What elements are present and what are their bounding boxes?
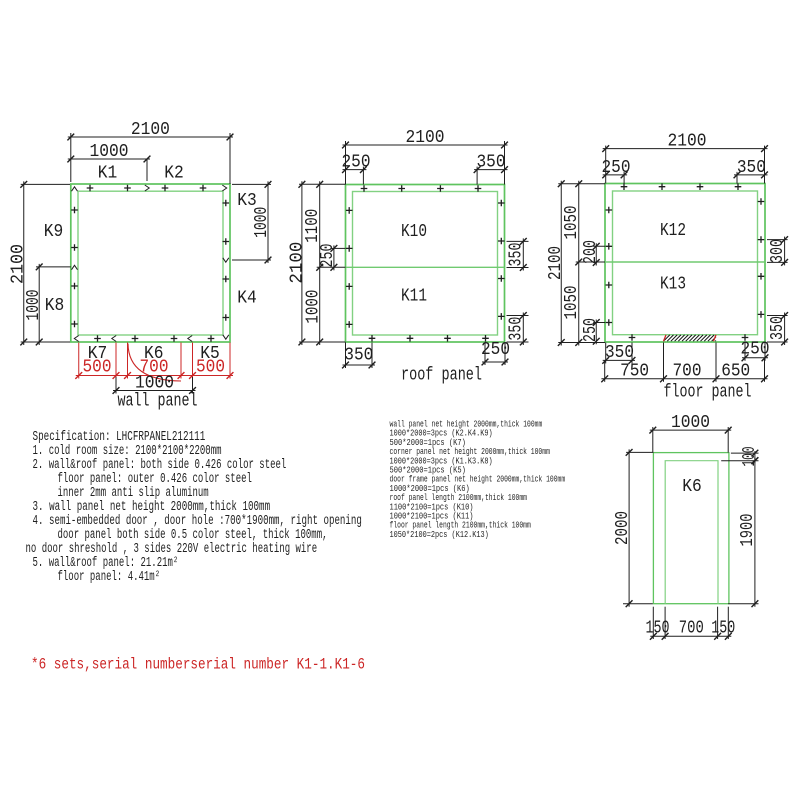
- svg-text:K7: K7: [88, 344, 108, 364]
- svg-text:1. cold room size: 2100*2100*2: 1. cold room size: 2100*2100*2200mm: [33, 444, 222, 459]
- svg-text:K8: K8: [45, 296, 65, 316]
- svg-text:K2: K2: [164, 164, 184, 184]
- svg-text:650: 650: [721, 361, 750, 381]
- svg-text:1000: 1000: [671, 413, 710, 433]
- svg-text:350: 350: [507, 317, 527, 341]
- svg-text:floor panel: 4.41m²: floor panel: 4.41m²: [58, 570, 161, 585]
- svg-text:350: 350: [768, 316, 788, 340]
- svg-text:2. wall&roof panel: both side: 2. wall&roof panel: both side 0.426 colo…: [33, 458, 287, 473]
- svg-text:700: 700: [679, 619, 704, 639]
- svg-text:250: 250: [741, 340, 770, 360]
- svg-text:K5: K5: [200, 344, 220, 364]
- svg-text:2100: 2100: [8, 244, 28, 284]
- svg-text:inner 2mm anti slip aluminum: inner 2mm anti slip aluminum: [58, 486, 209, 501]
- svg-text:1100: 1100: [303, 209, 323, 243]
- svg-text:K9: K9: [44, 222, 64, 242]
- svg-text:wall panel: wall panel: [118, 392, 198, 412]
- svg-text:1050*2100=2pcs (K12.K13): 1050*2100=2pcs (K12.K13): [390, 529, 489, 540]
- svg-text:2100: 2100: [668, 132, 707, 152]
- svg-text:350: 350: [605, 343, 634, 363]
- svg-text:2100: 2100: [546, 246, 566, 280]
- svg-text:250: 250: [581, 318, 601, 342]
- svg-text:250: 250: [481, 340, 510, 360]
- svg-text:K12: K12: [660, 221, 686, 241]
- svg-text:4. semi-embedded door , door: 4. semi-embedded door , door hole :700*1…: [33, 514, 362, 529]
- svg-text:K10: K10: [401, 222, 427, 242]
- svg-text:2100: 2100: [287, 242, 307, 284]
- svg-text:1000: 1000: [90, 142, 129, 162]
- svg-text:Specification: LHCFRPANEL2121: Specification: LHCFRPANEL212111: [33, 430, 206, 445]
- svg-text:1050: 1050: [562, 286, 582, 320]
- svg-text:700: 700: [673, 361, 702, 381]
- svg-text:K11: K11: [401, 287, 427, 307]
- svg-text:350: 350: [737, 158, 766, 178]
- svg-text:350: 350: [344, 346, 373, 366]
- svg-text:250: 250: [318, 244, 338, 268]
- svg-text:floor panel: floor panel: [664, 383, 752, 403]
- svg-text:K3: K3: [237, 191, 257, 211]
- svg-text:2100: 2100: [131, 120, 170, 140]
- svg-text:350: 350: [507, 243, 527, 267]
- svg-text:1000: 1000: [24, 290, 44, 321]
- svg-text:300: 300: [768, 239, 788, 263]
- svg-text:floor panel: outer 0.426 color: floor panel: outer 0.426 color steel: [58, 472, 252, 487]
- svg-text:1900: 1900: [738, 514, 758, 547]
- svg-text:no door shreshold , 3 sides 22: no door shreshold , 3 sides 220V electri…: [26, 542, 318, 557]
- svg-text:2100: 2100: [406, 128, 445, 148]
- svg-text:K1: K1: [98, 164, 118, 184]
- svg-text:K6: K6: [144, 344, 164, 364]
- svg-text:350: 350: [477, 153, 506, 173]
- svg-text:200: 200: [581, 240, 601, 264]
- svg-text:1000: 1000: [252, 207, 272, 238]
- svg-text:5. wall&roof panel: 21.21m²: 5. wall&roof panel: 21.21m²: [33, 556, 179, 571]
- svg-text:1000: 1000: [303, 290, 323, 324]
- svg-text:door panel both side 0.5 color: door panel both side 0.5 color steel, th…: [58, 528, 328, 543]
- svg-text:750: 750: [620, 361, 649, 381]
- svg-text:K6: K6: [682, 477, 702, 497]
- svg-text:K13: K13: [660, 275, 686, 295]
- svg-text:100: 100: [740, 447, 760, 467]
- svg-text:1000: 1000: [135, 374, 174, 394]
- svg-text:K4: K4: [237, 289, 257, 309]
- svg-text:roof panel: roof panel: [401, 366, 482, 386]
- svg-text:2000: 2000: [613, 511, 633, 545]
- svg-text:3. wall panel net height 2000: 3. wall panel net height 2000mm,thick 10…: [33, 500, 271, 515]
- svg-text:*6 sets,serial numberserial nu: *6 sets,serial numberserial number K1-1.…: [31, 656, 365, 674]
- svg-text:250: 250: [342, 153, 371, 173]
- svg-text:250: 250: [602, 158, 631, 178]
- svg-text:150: 150: [711, 619, 735, 639]
- svg-text:150: 150: [646, 619, 670, 639]
- svg-text:1050: 1050: [562, 206, 582, 240]
